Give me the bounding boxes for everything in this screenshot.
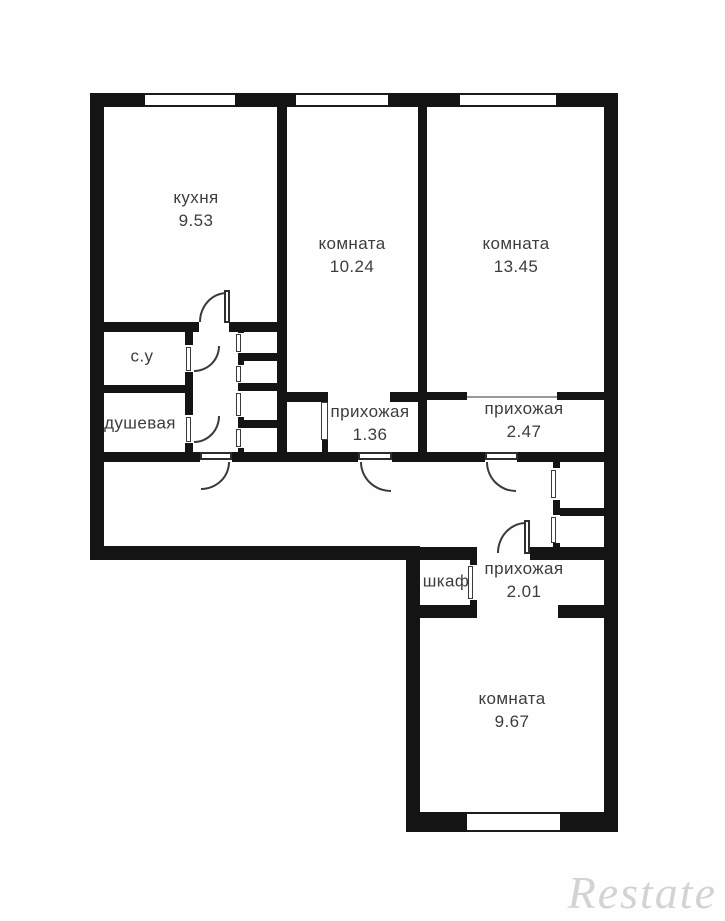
wall-top-3 xyxy=(388,93,460,107)
wall-right-closet-divider xyxy=(560,508,604,516)
wall-room-b-bottom-1 xyxy=(427,392,467,400)
hall-a-door-leaf xyxy=(321,402,328,440)
wall-cell-divider-3 xyxy=(238,420,287,428)
wall-corridor-top-1 xyxy=(90,452,200,462)
wall-wc-hall-3 xyxy=(185,443,193,452)
hall-b-corridor-door-arc xyxy=(486,462,516,492)
wall-room-c-top-right xyxy=(558,605,618,618)
room-label-hall-a: прихожая 1.36 xyxy=(331,401,410,447)
wall-kitchen-bottom-1 xyxy=(90,322,199,332)
room-name: комната xyxy=(478,688,545,711)
hallway-door-arc xyxy=(201,462,230,490)
hall-a-corridor-door-leaf xyxy=(358,452,392,460)
wall-right-closets-2 xyxy=(553,500,560,515)
hall-b-corridor-door-leaf xyxy=(485,452,518,460)
wall-step-vertical xyxy=(406,546,420,832)
room-label-room-c: комната 9.67 xyxy=(478,688,545,734)
wall-wc-hall-2 xyxy=(185,372,193,415)
floor-plan: кухня 9.53 комната 10.24 комната 13.45 с… xyxy=(0,0,725,921)
wall-cells-left-1 xyxy=(238,322,244,333)
right-closet-door-leaf-1 xyxy=(551,470,556,498)
window-room-a xyxy=(296,93,388,107)
room-area: 2.47 xyxy=(485,421,564,444)
room-name: комната xyxy=(482,233,549,256)
wall-bottom-1 xyxy=(406,812,467,832)
wall-right xyxy=(604,93,618,832)
wall-corridor-top-2 xyxy=(232,452,358,462)
wall-corridor-top-4 xyxy=(517,452,618,462)
room-area: 9.67 xyxy=(478,711,545,734)
room-name: прихожая xyxy=(485,558,564,581)
shower-door-leaf xyxy=(186,417,191,442)
kitchen-door-arc xyxy=(199,292,227,322)
room-label-closet: шкаф xyxy=(423,571,470,594)
entry-door-arc xyxy=(497,522,526,553)
wall-room-b-bottom-2 xyxy=(557,392,604,400)
wall-room-a-bottom-1 xyxy=(287,392,328,402)
shower-door-arc xyxy=(194,416,220,443)
room-name: кухня xyxy=(173,187,218,210)
wall-wc-hall-1 xyxy=(185,332,193,345)
watermark-restate: Restate xyxy=(568,866,717,919)
room-label-wc: с.у xyxy=(131,346,154,369)
wall-closet-bottom xyxy=(418,605,477,618)
wall-hall-a-stub xyxy=(322,440,328,452)
hall-a-corridor-door-arc xyxy=(360,462,391,492)
kitchen-door-leaf xyxy=(224,290,230,323)
room-name: шкаф xyxy=(423,571,470,594)
entry-door-leaf xyxy=(524,520,530,554)
cell-door-leaf-4 xyxy=(236,429,241,447)
wc-door-arc xyxy=(194,346,220,372)
wall-cell-divider-2 xyxy=(238,383,287,391)
window-room-b xyxy=(460,93,556,107)
room-area: 10.24 xyxy=(318,256,385,279)
room-label-hall-b: прихожая 2.47 xyxy=(485,398,564,444)
cell-door-leaf-1 xyxy=(236,334,241,352)
wall-corridor-top-3 xyxy=(392,452,485,462)
right-closet-door-leaf-2 xyxy=(551,517,556,543)
room-area: 13.45 xyxy=(482,256,549,279)
cell-door-leaf-3 xyxy=(236,393,241,416)
wall-right-closets-1 xyxy=(553,462,560,468)
room-label-kitchen: кухня 9.53 xyxy=(173,187,218,233)
wall-wc-bottom xyxy=(90,385,193,393)
room-label-room-a: комната 10.24 xyxy=(318,233,385,279)
room-label-hall-c: прихожая 2.01 xyxy=(485,558,564,604)
room-area: 1.36 xyxy=(331,424,410,447)
room-name: прихожая xyxy=(331,401,410,424)
room-area: 2.01 xyxy=(485,581,564,604)
window-room-c xyxy=(467,812,560,832)
wc-door-leaf xyxy=(186,347,191,371)
room-area: 9.53 xyxy=(173,210,218,233)
room-name: душевая xyxy=(104,413,176,436)
wall-cell-divider-1 xyxy=(238,353,287,361)
cell-door-leaf-2 xyxy=(236,366,241,382)
room-name: с.у xyxy=(131,346,154,369)
wall-kitchen-room-a xyxy=(277,107,287,462)
room-label-shower: душевая xyxy=(104,413,176,436)
hallway-door-leaf xyxy=(200,452,232,460)
room-name: комната xyxy=(318,233,385,256)
wall-closet-top xyxy=(420,547,477,560)
window-kitchen xyxy=(145,93,235,107)
wall-bottom-2 xyxy=(560,812,618,832)
room-name: прихожая xyxy=(485,398,564,421)
room-label-room-b: комната 13.45 xyxy=(482,233,549,279)
wall-closet-right-1 xyxy=(470,553,477,565)
wall-corridor-bottom xyxy=(90,546,420,560)
wall-top-2 xyxy=(235,93,296,107)
